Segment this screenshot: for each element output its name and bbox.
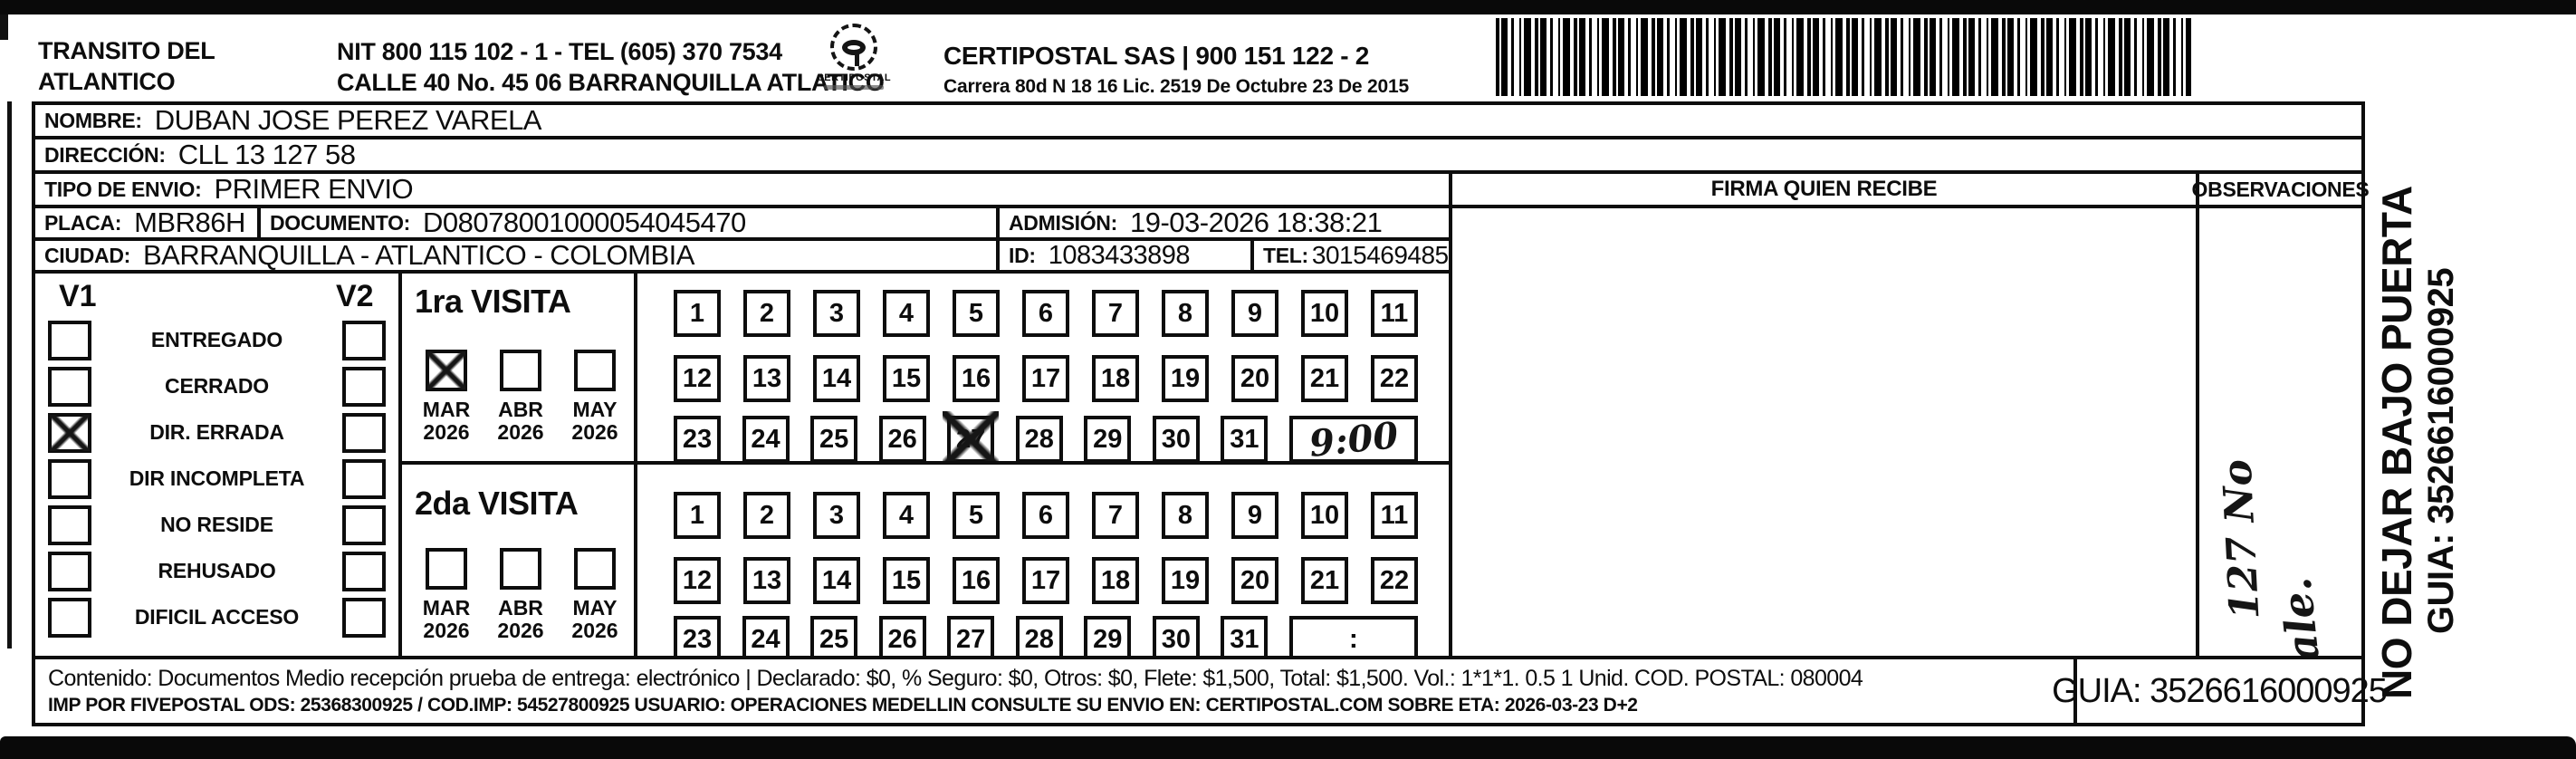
day-cell: 25 [810,416,857,463]
second-visit-title: 2da VISITA [415,485,578,523]
v1-checkbox [48,598,91,638]
carrier-address-license: Carrera 80d N 18 16 Lic. 2519 De Octubre… [943,76,1409,98]
day-cell: 16 [953,355,1000,402]
visit2-column-header: V2 [336,279,374,314]
company-nit-phone: NIT 800 115 102 - 1 - TEL (605) 370 7534 [337,38,782,66]
v1-checkbox [48,505,91,545]
day-cell: 11 [1371,290,1418,337]
month-option: MAR2026 [411,350,482,444]
admision-cell: ADMISIÓN: 19-03-2026 18:38:21 [996,205,1452,241]
month-label: MAY [573,399,618,421]
status-row: DIR INCOMPLETA [48,456,386,502]
side-vertical-text: NO DEJAR BAJO PUERTA GUIA: 3526616000925 [2372,118,2508,699]
month-option: ABR2026 [485,350,556,444]
day-cell: 4 [883,290,930,337]
time-value: 9:00 [1307,413,1401,465]
v1-checkbox [48,367,91,407]
day-row: 1213141516171819202122 [674,557,1418,604]
month-checkbox [426,350,467,391]
handwritten-observation-note: 127 No Sale. [2217,351,2361,696]
footer-box: Contenido: Documentos Medio recepción pr… [32,656,2365,726]
status-row: DIFICIL ACCESO [48,594,386,640]
day-row: 1213141516171819202122 [674,355,1418,402]
logo-wordmark: CERTIPOSTAL [804,72,904,83]
day-cell: 31 [1221,416,1268,463]
company-name-line2: ATLANTICO [38,67,215,98]
documento-value: D08078001000054045470 [423,207,746,239]
company-address: CALLE 40 No. 45 06 BARRANQUILLA ATLATICO [337,69,885,97]
scan-bottom-edge [0,736,2576,759]
second-visit-month-panel: 2da VISITA MAR2026ABR2026MAY2026 [398,461,637,659]
day-cell: 27 [947,416,994,463]
ciudad-label: CIUDAD: [44,244,130,268]
v1-checkbox [48,321,91,360]
day-cell: 22 [1371,355,1418,402]
status-label: DIR. ERRADA [91,420,342,445]
logo-tagline-smudge [824,85,884,90]
direccion-row: DIRECCIÓN: CLL 13 127 58 [32,136,2365,174]
first-visit-month-panel: 1ra VISITA MAR2026ABR2026MAY2026 [398,270,637,465]
day-grid: 1234567891011121314151617181920212223242… [637,274,1449,461]
month-year: 2026 [571,421,618,444]
v2-checkbox [342,459,386,499]
tipo-envio-label: TIPO DE ENVIO: [44,178,201,202]
day-cell: 24 [742,416,790,463]
v2-checkbox [342,552,386,591]
day-cell: 10 [1301,290,1348,337]
day-cell: 12 [674,355,721,402]
tipo-envio-row: TIPO DE ENVIO: PRIMER ENVIO [32,170,1452,208]
first-visit-day-grid: 1234567891011121314151617181920212223242… [634,270,1452,465]
admision-value: 19-03-2026 18:38:21 [1130,207,1382,239]
day-cell: 14 [813,355,860,402]
first-visit-title: 1ra VISITA [415,283,570,321]
documento-label: DOCUMENTO: [270,211,410,235]
day-cell: 6 [1022,492,1069,539]
status-label: ENTREGADO [91,328,342,352]
day-cell: 17 [1022,557,1069,604]
nombre-row: NOMBRE: DUBAN JOSE PEREZ VARELA [32,101,2365,139]
day-cell: 1 [674,492,721,539]
month-label: MAY [573,597,618,620]
month-checkbox [500,350,541,391]
day-cell: 4 [883,492,930,539]
day-cell: 15 [883,355,930,402]
day-cell: 9 [1231,290,1278,337]
status-checkbox-panel: V1 V2 ENTREGADOCERRADODIR. ERRADADIR INC… [32,270,402,659]
guia-number-box: GUIA: 3526616000925 [2073,659,2361,723]
observaciones-column-header: OBSERVACIONES [2196,170,2365,208]
sender-company-name: TRANSITO DEL ATLANTICO [38,36,215,98]
day-cell: 11 [1371,492,1418,539]
placa-value: MBR86H [134,207,245,239]
day-cell: 3 [813,290,860,337]
status-row: DIR. ERRADA [48,409,386,456]
month-checkbox [574,548,616,590]
scanned-postal-form: TRANSITO DEL ATLANTICO NIT 800 115 102 -… [0,0,2576,759]
day-cell: 10 [1301,492,1348,539]
visit1-column-header: V1 [59,279,97,314]
month-checkbox [574,350,616,391]
day-cell: 5 [953,290,1000,337]
day-cell: 1 [674,290,721,337]
month-year: 2026 [497,421,543,444]
day-row: 1234567891011 [674,290,1418,337]
month-year: 2026 [571,620,618,642]
carrier-company-name: CERTIPOSTAL SAS | 900 151 122 - 2 [943,42,1369,71]
status-row: ENTREGADO [48,317,386,363]
day-cell: 7 [1092,492,1139,539]
day-cell: 21 [1301,557,1348,604]
status-label: NO RESIDE [91,513,342,537]
x-mark [50,415,90,451]
status-label: REHUSADO [91,559,342,583]
status-label: DIFICIL ACCESO [91,605,342,629]
day-cell: 23 [674,416,721,463]
day-cell: 8 [1162,492,1209,539]
month-option: MAY2026 [560,548,630,642]
day-cell: 7 [1092,290,1139,337]
tel-label: TEL: [1263,244,1308,268]
time-box: 9:00 [1289,416,1418,463]
time-value: : [1349,624,1358,655]
x-mark [427,351,465,389]
month-year: 2026 [423,421,469,444]
day-row: 2324252627282930319:00 [674,416,1418,463]
v2-checkbox [342,367,386,407]
day-cell: 19 [1162,355,1209,402]
tel-value: 3015469485 [1312,241,1449,270]
day-cell: 13 [743,355,790,402]
certipostal-logo: CERTIPOSTAL [804,24,904,100]
day-grid: 1234567891011121314151617181920212223242… [637,465,1449,656]
firma-signature-area [1449,205,2199,659]
firma-column-header: FIRMA QUIEN RECIBE [1449,170,2199,208]
direccion-label: DIRECCIÓN: [44,143,166,168]
v2-checkbox [342,505,386,545]
direccion-value: CLL 13 127 58 [178,139,356,171]
scan-top-edge [0,0,2576,14]
status-row: CERRADO [48,363,386,409]
admision-label: ADMISIÓN: [1009,211,1117,235]
status-rows: ENTREGADOCERRADODIR. ERRADADIR INCOMPLET… [48,317,386,640]
footer-text-cell: Contenido: Documentos Medio recepción pr… [35,659,2073,723]
tipo-envio-value: PRIMER ENVIO [214,173,413,206]
tracking-barcode [1496,18,2191,96]
day-cell: 28 [1016,416,1063,463]
day-cell: 30 [1153,416,1200,463]
day-cell: 13 [743,557,790,604]
day-cell: 12 [674,557,721,604]
day-cell: 26 [879,416,926,463]
ciudad-cell: CIUDAD: BARRANQUILLA - ATLANTICO - COLOM… [32,237,1000,274]
documento-cell: DOCUMENTO: D08078001000054045470 [257,205,1000,241]
day-cell: 15 [883,557,930,604]
day-cell: 29 [1084,416,1131,463]
v1-checkbox [48,413,91,453]
status-label: CERRADO [91,374,342,399]
id-label: ID: [1009,244,1036,268]
nombre-value: DUBAN JOSE PEREZ VARELA [155,104,541,137]
id-cell: ID: 1083433898 [996,237,1254,274]
day-cell: 8 [1162,290,1209,337]
status-row: NO RESIDE [48,502,386,548]
id-value: 1083433898 [1049,241,1190,271]
day-cell: 2 [743,492,790,539]
logo-glyph-icon [842,40,866,55]
v1-checkbox [48,459,91,499]
month-checkbox [500,548,541,590]
month-label: MAR [423,597,470,620]
day-cell: 2 [743,290,790,337]
month-checkbox [426,548,467,590]
day-cell: 6 [1022,290,1069,337]
placa-cell: PLACA: MBR86H [32,205,261,241]
v2-checkbox [342,321,386,360]
month-option: MAY2026 [560,350,630,444]
day-cell: 16 [953,557,1000,604]
v1-checkbox [48,552,91,591]
first-visit-months: MAR2026ABR2026MAY2026 [411,350,630,444]
day-cell: 14 [813,557,860,604]
month-option: ABR2026 [485,548,556,642]
day-cell: 21 [1301,355,1348,402]
v2-checkbox [342,413,386,453]
company-name-line1: TRANSITO DEL [38,36,215,67]
logo-stamp-icon [830,24,877,71]
month-option: MAR2026 [411,548,482,642]
day-cell: 19 [1162,557,1209,604]
month-label: ABR [498,597,543,620]
day-cell: 22 [1371,557,1418,604]
day-cell: 20 [1231,355,1278,402]
day-cell: 17 [1022,355,1069,402]
delivery-instruction-text: NO DEJAR BAJO PUERTA [2372,118,2421,699]
status-label: DIR INCOMPLETA [91,466,342,491]
tel-cell: TEL: 3015469485 [1250,237,1452,274]
footer-import-line: IMP POR FIVEPOSTAL ODS: 25368300925 / CO… [48,695,2061,716]
x-mark [943,411,999,467]
ciudad-value: BARRANQUILLA - ATLANTICO - COLOMBIA [143,239,694,272]
placa-label: PLACA: [44,211,121,235]
guia-number-vertical: GUIA: 3526616000925 [2421,118,2462,699]
second-visit-months: MAR2026ABR2026MAY2026 [411,548,630,642]
footer-content-line: Contenido: Documentos Medio recepción pr… [48,666,2061,692]
scan-edge-artifact [7,101,12,649]
status-row: REHUSADO [48,548,386,594]
day-cell: 18 [1092,557,1139,604]
month-year: 2026 [497,620,543,642]
day-row: 1234567891011 [674,492,1418,539]
day-cell: 5 [953,492,1000,539]
day-cell: 3 [813,492,860,539]
day-cell: 18 [1092,355,1139,402]
nombre-label: NOMBRE: [44,109,142,133]
month-label: ABR [498,399,543,421]
day-cell: 9 [1231,492,1278,539]
v2-checkbox [342,598,386,638]
day-cell: 20 [1231,557,1278,604]
month-label: MAR [423,399,470,421]
scan-edge-artifact [0,14,8,40]
month-year: 2026 [423,620,469,642]
second-visit-day-grid: 1234567891011121314151617181920212223242… [634,461,1452,659]
